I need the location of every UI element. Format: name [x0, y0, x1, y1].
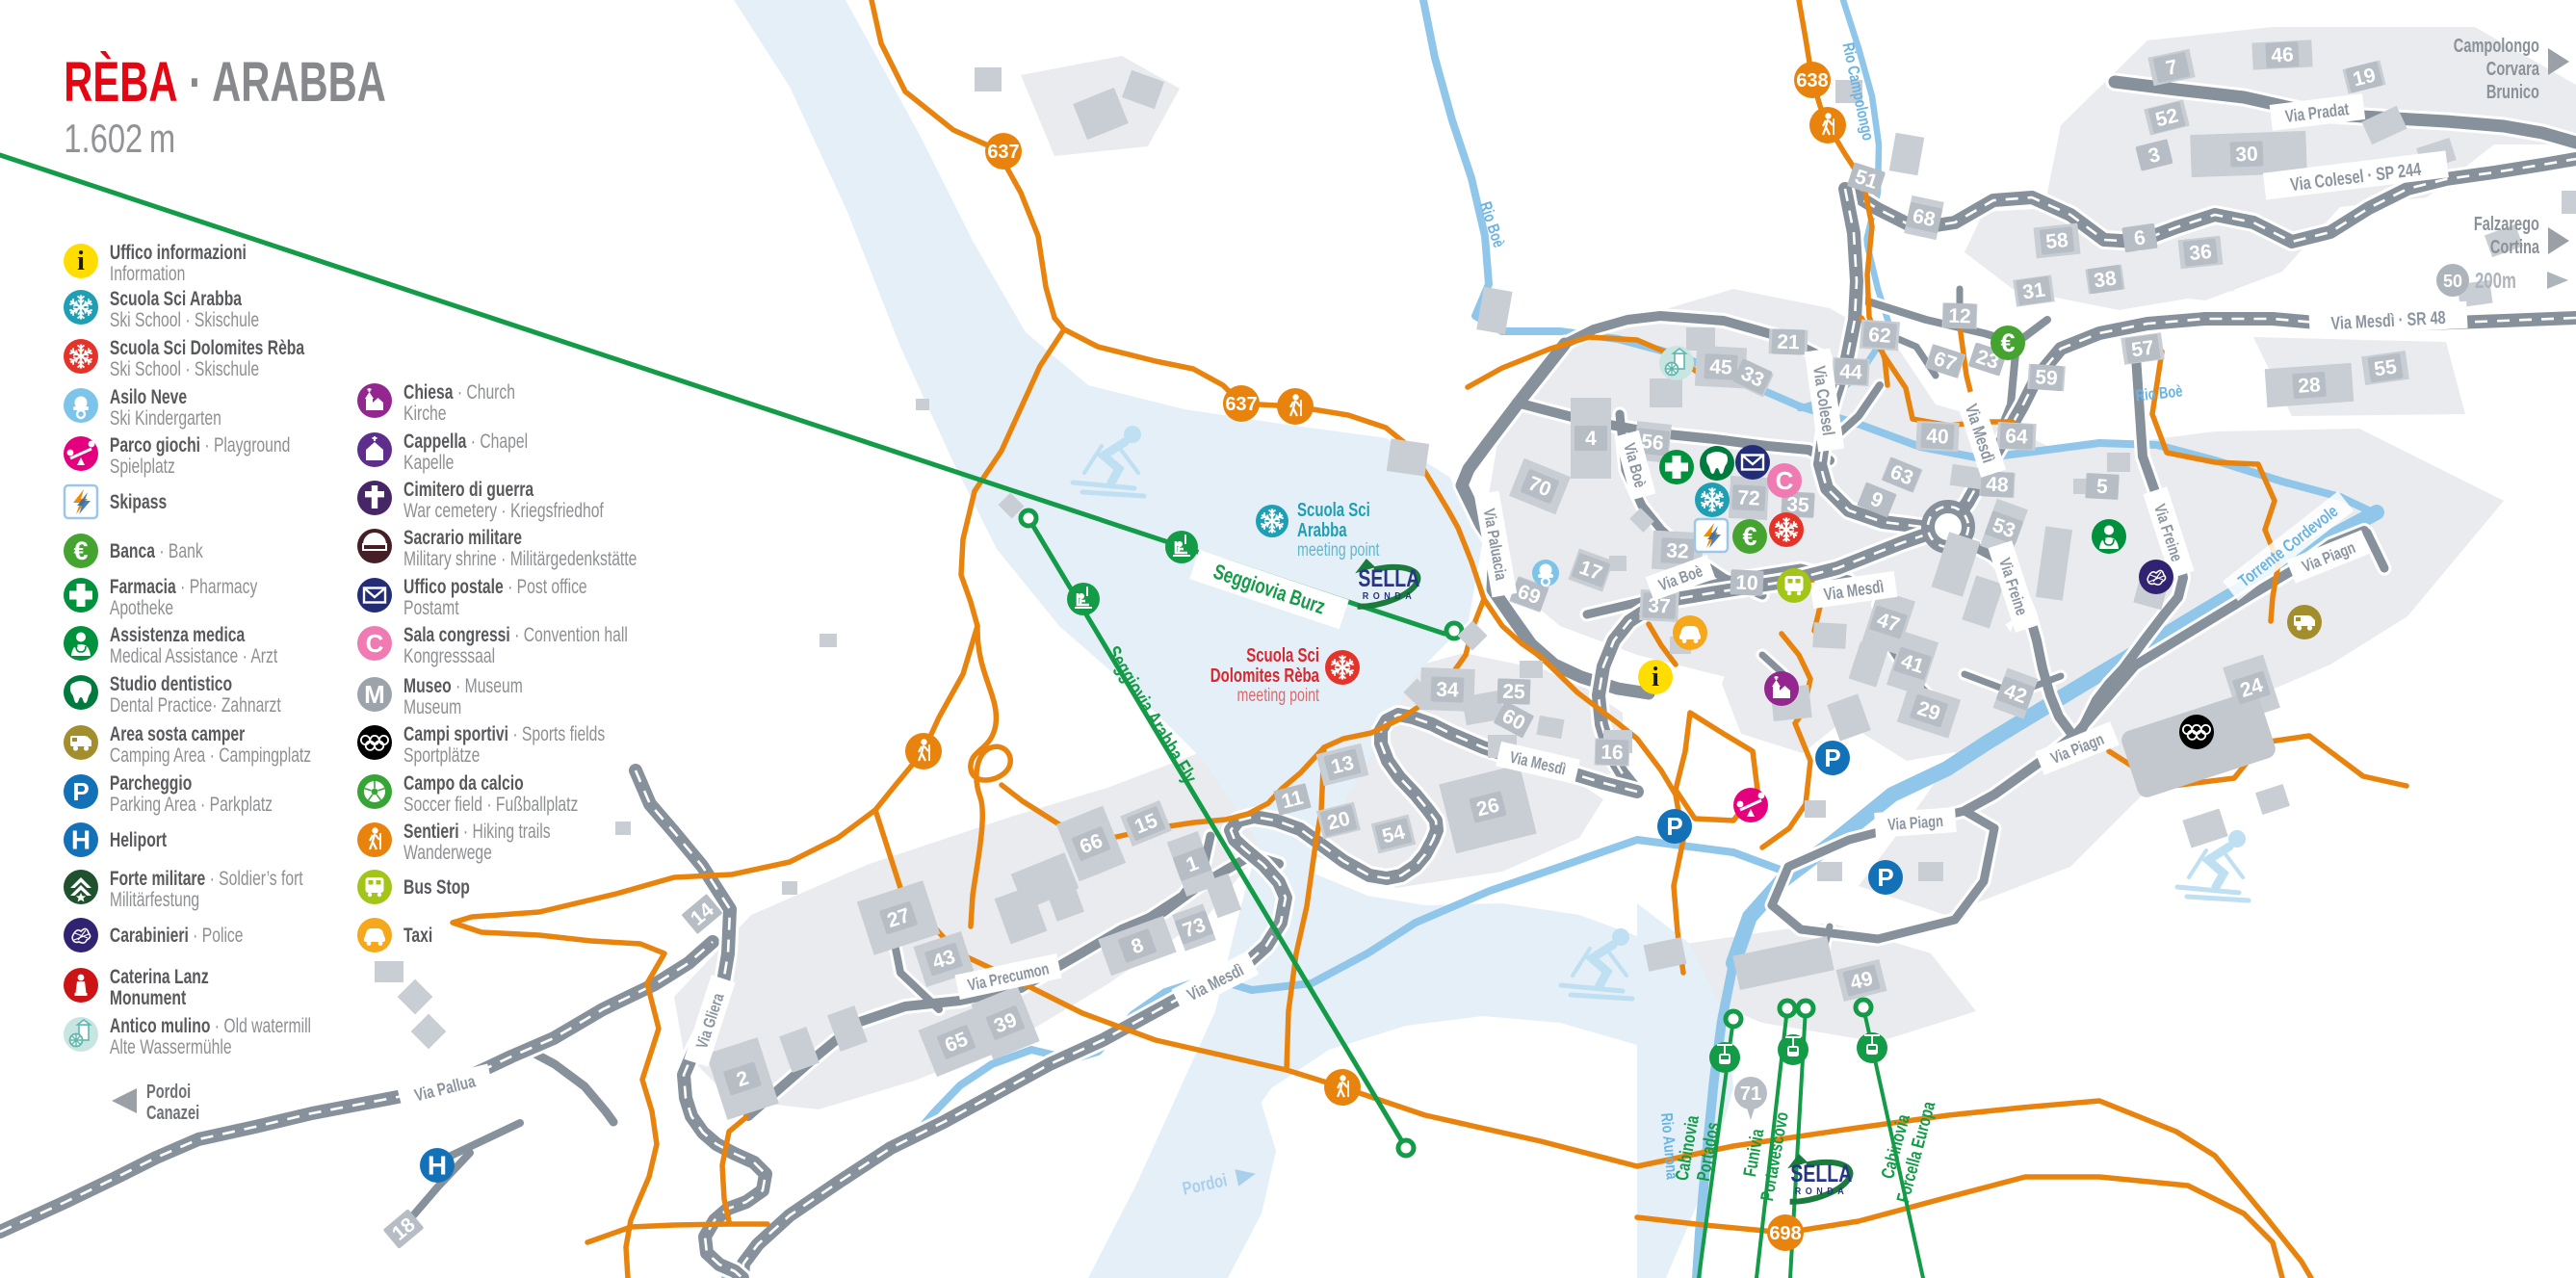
- svg-text:Taxi: Taxi: [403, 924, 432, 947]
- svg-text:Antico mulino · Old watermill: Antico mulino · Old watermill: [110, 1014, 311, 1037]
- svg-text:Area sosta camper: Area sosta camper: [110, 722, 246, 745]
- svg-text:55: 55: [2373, 355, 2399, 380]
- svg-text:Postamt: Postamt: [403, 596, 459, 619]
- svg-text:C: C: [1776, 466, 1794, 495]
- svg-text:4: 4: [1585, 428, 1597, 450]
- svg-text:Brunico: Brunico: [2486, 81, 2539, 103]
- svg-text:21: 21: [1777, 331, 1800, 354]
- svg-text:Uffico postale · Post office: Uffico postale · Post office: [403, 575, 587, 598]
- svg-text:30: 30: [2235, 143, 2258, 167]
- svg-text:Campolongo: Campolongo: [2454, 35, 2539, 57]
- svg-text:Scuola Sci: Scuola Sci: [1297, 499, 1370, 521]
- svg-text:Dental Practice· Zahnarzt: Dental Practice· Zahnarzt: [110, 693, 281, 717]
- svg-text:48: 48: [1986, 473, 2010, 496]
- svg-text:Sacrario militare: Sacrario militare: [403, 526, 522, 549]
- svg-text:Caterina Lanz: Caterina Lanz: [110, 965, 209, 988]
- svg-text:RÈBA · ARABBA: RÈBA · ARABBA: [64, 50, 386, 113]
- svg-text:Ski School · Skischule: Ski School · Skischule: [110, 308, 259, 331]
- svg-text:Museum: Museum: [403, 695, 461, 718]
- svg-text:Banca · Bank: Banca · Bank: [110, 539, 203, 562]
- svg-text:12: 12: [1948, 305, 1971, 328]
- svg-text:Apotheke: Apotheke: [110, 596, 173, 619]
- svg-text:Uffico informazioni: Uffico informazioni: [110, 241, 247, 264]
- svg-text:200m: 200m: [2475, 270, 2516, 294]
- svg-text:Arabba: Arabba: [1297, 519, 1347, 541]
- svg-text:Kongresssaal: Kongresssaal: [403, 644, 495, 667]
- svg-text:Parking Area · Parkplatz: Parking Area · Parkplatz: [110, 793, 273, 816]
- svg-text:H: H: [428, 1151, 447, 1181]
- svg-text:Military shrine · Militärgeden: Military shrine · Militärgedenkstätte: [403, 547, 637, 570]
- svg-text:Cortina: Cortina: [2490, 236, 2539, 258]
- svg-text:Carabinieri · Police: Carabinieri · Police: [110, 924, 244, 947]
- svg-text:50: 50: [2443, 272, 2462, 291]
- svg-text:Campi sportivi · Sports fields: Campi sportivi · Sports fields: [403, 722, 605, 745]
- svg-text:P: P: [1666, 812, 1682, 841]
- svg-text:25: 25: [1502, 681, 1525, 704]
- svg-text:Dolomites Rèba: Dolomites Rèba: [1210, 665, 1319, 687]
- svg-text:Ski Kindergarten: Ski Kindergarten: [110, 406, 221, 430]
- svg-text:Corvara: Corvara: [2486, 58, 2539, 80]
- svg-text:Canazei: Canazei: [146, 1102, 199, 1124]
- svg-text:Camping Area · Campingplatz: Camping Area · Campingplatz: [110, 743, 311, 767]
- svg-text:SELLA: SELLA: [1790, 1161, 1852, 1187]
- svg-text:Farmacia · Pharmacy: Farmacia · Pharmacy: [110, 575, 258, 598]
- svg-text:Spielplatz: Spielplatz: [110, 455, 175, 478]
- svg-text:P: P: [1877, 863, 1893, 892]
- svg-text:34: 34: [1436, 679, 1459, 702]
- svg-text:Assistenza medica: Assistenza medica: [110, 623, 246, 646]
- svg-text:698: 698: [1769, 1223, 1801, 1244]
- svg-text:P: P: [1824, 743, 1840, 772]
- svg-text:SELLA: SELLA: [1358, 565, 1419, 592]
- svg-text:637: 637: [1225, 394, 1257, 415]
- svg-text:36: 36: [2188, 241, 2213, 265]
- svg-text:Monument: Monument: [110, 986, 187, 1009]
- svg-text:16: 16: [1600, 742, 1624, 765]
- svg-text:Information: Information: [110, 262, 185, 285]
- svg-text:Scuola Sci Arabba: Scuola Sci Arabba: [110, 287, 243, 310]
- svg-text:Sentieri · Hiking trails: Sentieri · Hiking trails: [403, 820, 551, 843]
- svg-text:Via Piagn: Via Piagn: [1887, 812, 1944, 834]
- svg-text:46: 46: [2271, 43, 2295, 66]
- svg-text:RONDA: RONDA: [1363, 591, 1416, 603]
- svg-text:Sportplätze: Sportplätze: [403, 743, 480, 767]
- svg-text:72: 72: [1737, 486, 1761, 509]
- svg-text:Bus Stop: Bus Stop: [403, 875, 470, 899]
- svg-text:Chiesa · Church: Chiesa · Church: [403, 380, 515, 404]
- svg-text:Ski School · Skischule: Ski School · Skischule: [110, 357, 259, 380]
- svg-text:Falzarego: Falzarego: [2474, 213, 2539, 235]
- svg-text:62: 62: [1868, 324, 1892, 348]
- svg-text:638: 638: [1796, 70, 1828, 91]
- svg-text:meeting point: meeting point: [1297, 539, 1380, 560]
- svg-text:€: €: [1742, 522, 1756, 551]
- svg-text:31: 31: [2021, 278, 2047, 303]
- svg-text:RONDA: RONDA: [1795, 1187, 1848, 1198]
- svg-text:Militärfestung: Militärfestung: [110, 888, 199, 911]
- svg-text:i: i: [77, 247, 85, 276]
- svg-text:Heliport: Heliport: [110, 828, 168, 851]
- svg-text:Campo da calcio: Campo da calcio: [403, 771, 524, 795]
- svg-text:i: i: [1652, 663, 1659, 692]
- svg-text:32: 32: [1666, 539, 1690, 562]
- svg-text:Studio dentistico: Studio dentistico: [110, 672, 232, 695]
- svg-text:Sala congressi · Convention ha: Sala congressi · Convention hall: [403, 623, 628, 646]
- svg-text:637: 637: [987, 142, 1019, 163]
- svg-text:1.602 m: 1.602 m: [64, 116, 175, 161]
- svg-text:Medical Assistance · Arzt: Medical Assistance · Arzt: [110, 644, 278, 667]
- svg-text:War cemetery · Kriegsfriedhof: War cemetery · Kriegsfriedhof: [403, 499, 604, 522]
- svg-text:Parco giochi · Playground: Parco giochi · Playground: [110, 433, 290, 456]
- svg-text:Scuola Sci: Scuola Sci: [1246, 644, 1319, 666]
- svg-text:M: M: [364, 680, 385, 709]
- svg-text:Wanderwege: Wanderwege: [403, 841, 492, 864]
- svg-text:Alte Wassermühle: Alte Wassermühle: [110, 1035, 232, 1058]
- svg-text:5: 5: [2096, 476, 2109, 499]
- svg-text:Parcheggio: Parcheggio: [110, 771, 192, 795]
- svg-text:Asilo Neve: Asilo Neve: [110, 385, 187, 408]
- svg-text:45: 45: [1709, 355, 1733, 378]
- svg-text:38: 38: [2093, 267, 2119, 292]
- svg-text:10: 10: [1735, 571, 1759, 594]
- svg-text:Kirche: Kirche: [403, 402, 446, 425]
- svg-text:44: 44: [1839, 360, 1863, 383]
- svg-text:H: H: [71, 825, 91, 855]
- svg-text:Forte militare · Soldier’s for: Forte militare · Soldier’s fort: [110, 867, 303, 890]
- svg-text:Scuola Sci Dolomites Rèba: Scuola Sci Dolomites Rèba: [110, 336, 305, 359]
- svg-text:57: 57: [2130, 336, 2155, 361]
- svg-text:Kapelle: Kapelle: [403, 451, 454, 474]
- svg-text:28: 28: [2298, 374, 2322, 398]
- svg-text:Museo · Museum: Museo · Museum: [403, 674, 523, 697]
- svg-text:59: 59: [2035, 366, 2059, 390]
- svg-text:58: 58: [2044, 229, 2069, 253]
- svg-text:P: P: [72, 777, 89, 806]
- svg-text:meeting point: meeting point: [1237, 685, 1320, 705]
- svg-text:40: 40: [1926, 425, 1950, 448]
- svg-text:71: 71: [1740, 1083, 1761, 1105]
- svg-text:64: 64: [2005, 425, 2029, 448]
- svg-text:C: C: [366, 629, 384, 658]
- svg-text:Pordoi: Pordoi: [146, 1081, 191, 1103]
- svg-text:Skipass: Skipass: [110, 490, 167, 513]
- svg-text:Cappella · Chapel: Cappella · Chapel: [403, 430, 528, 453]
- svg-text:Cimitero di guerra: Cimitero di guerra: [403, 478, 534, 501]
- svg-text:€: €: [73, 536, 88, 565]
- svg-text:Soccer field · Fußballplatz: Soccer field · Fußballplatz: [403, 793, 578, 816]
- svg-text:€: €: [2000, 328, 2015, 357]
